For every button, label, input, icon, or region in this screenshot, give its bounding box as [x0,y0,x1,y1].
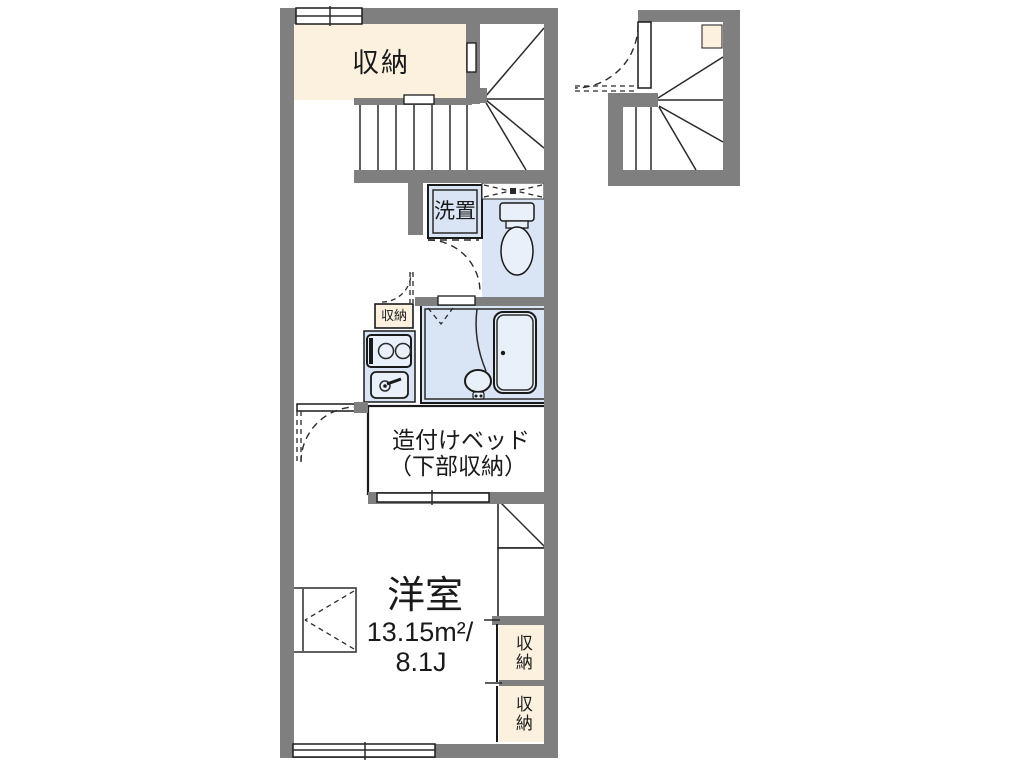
refrigerator-space [498,500,546,548]
storage-small-label: 収納 [381,309,407,323]
wall-left [280,8,294,758]
stairs-unit-wall-left [608,93,623,170]
wall-washroom-left [408,170,423,235]
storage-right-upper-label: 収納 [513,634,531,672]
louver-window-icon [482,183,544,199]
toilet-icon [500,203,534,275]
storage-top-label: 収納 [352,49,410,77]
wall-right [544,8,558,758]
bed-label-line1: 造付けベッド [392,428,530,452]
stairs-unit-pivot-post [622,93,658,107]
storage-right-lower-label: 収納 [513,695,531,733]
stairs-unit-wall-bottom [608,170,740,186]
stairs-unit-wall-right [723,10,740,186]
storage-door-gap [467,43,476,72]
entry-door [575,22,651,91]
bed-front-panel [377,490,489,505]
sink-icon [371,372,408,398]
floor-plan-canvas: 収納 洗置 収納 造付けベッド （下部収納） 洋室 13.15m²/ 8.1J … [0,0,1017,772]
casement-window-icon [292,588,356,652]
open-shelf-space [498,548,546,618]
bed-label-line2: （下部収納） [389,454,527,478]
stairs-wall-opening [404,95,434,104]
stove-icon [367,335,411,367]
washer-label: 洗置 [434,201,476,223]
wall-stairs-bottom [354,170,544,183]
bath-door-bar [438,296,475,305]
stairs-pivot-post [470,88,487,103]
floor-plan-drawing [0,0,1017,772]
room-size-label: 8.1J [395,648,446,676]
wall-bed-left-stub [354,402,368,413]
room-name-label: 洋室 [387,577,463,617]
top-window-icon [296,6,362,26]
wall-column-divider2 [499,680,544,686]
room-area-label: 13.15m²/ [367,618,474,646]
bottom-window-icon [293,742,435,760]
wall-toilet-bath [415,297,544,306]
stairs-unit-storage-box [702,25,722,48]
bathtub-icon [494,312,536,393]
entry-stairs-unit [575,10,740,186]
